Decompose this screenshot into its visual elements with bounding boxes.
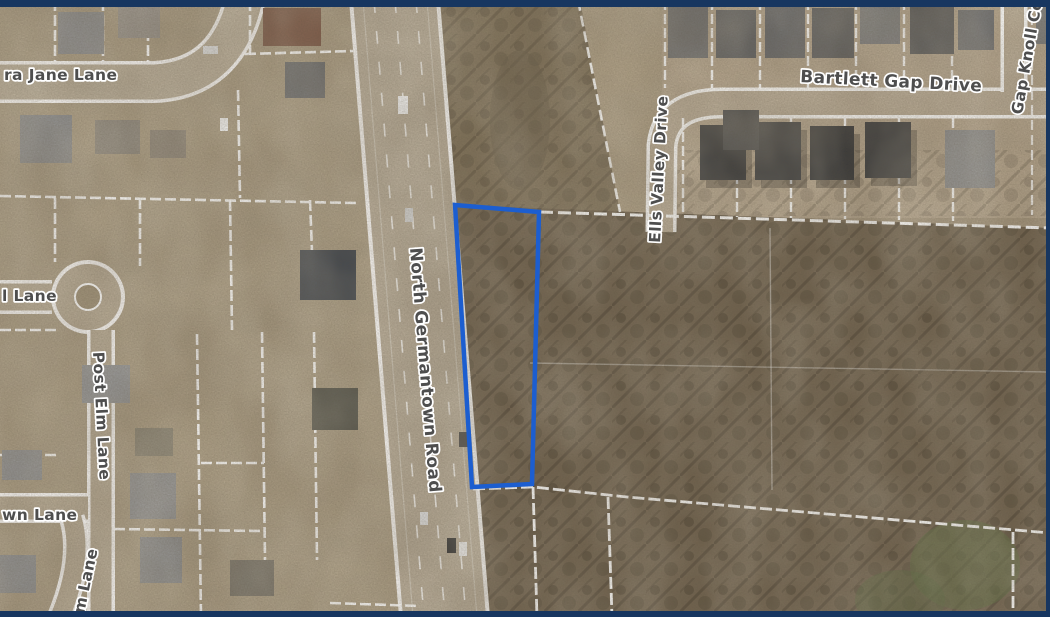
label-l-lane: l Lane bbox=[2, 287, 57, 305]
frame-edge-top bbox=[0, 0, 1050, 7]
label-jane-lane: ra Jane Lane bbox=[4, 66, 117, 84]
frame-edge-right bbox=[1046, 0, 1050, 617]
noise-grain-overlay bbox=[0, 0, 1050, 617]
map-viewport[interactable]: ra Jane Lane Bartlett Gap Drive Gap Knol… bbox=[0, 0, 1050, 617]
frame-edge-bottom bbox=[0, 611, 1050, 617]
label-wn-lane: wn Lane bbox=[2, 506, 77, 524]
aerial-map[interactable]: ra Jane Lane Bartlett Gap Drive Gap Knol… bbox=[0, 0, 1050, 617]
